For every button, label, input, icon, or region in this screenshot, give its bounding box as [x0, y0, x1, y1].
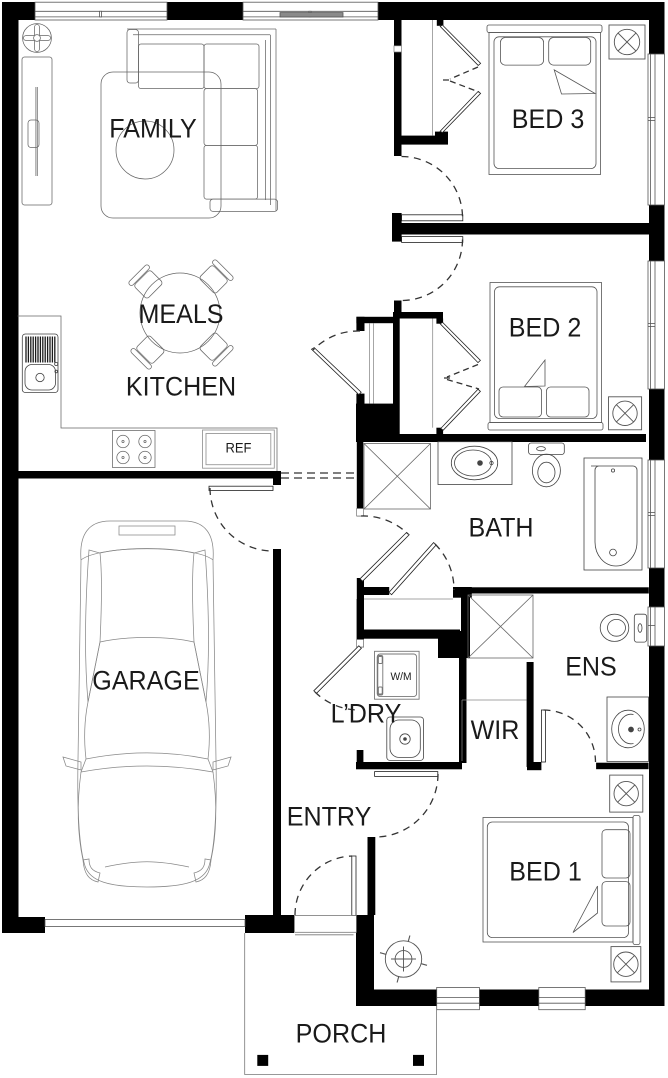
svg-text:L’DRY: L’DRY [331, 698, 402, 729]
svg-text:W/M: W/M [390, 671, 411, 683]
svg-text:ENS: ENS [565, 651, 617, 682]
svg-text:MEALS: MEALS [138, 298, 223, 329]
svg-text:GARAGE: GARAGE [92, 665, 199, 696]
svg-text:PORCH: PORCH [296, 1018, 387, 1049]
svg-text:KITCHEN: KITCHEN [126, 371, 236, 402]
svg-text:BATH: BATH [468, 512, 533, 543]
svg-text:BED 3: BED 3 [512, 103, 585, 134]
svg-text:WIR: WIR [471, 714, 520, 745]
svg-text:ENTRY: ENTRY [287, 801, 372, 832]
svg-text:BED 1: BED 1 [509, 856, 582, 887]
svg-text:REF: REF [225, 440, 251, 456]
svg-text:FAMILY: FAMILY [109, 112, 196, 143]
svg-text:BED 2: BED 2 [509, 312, 582, 343]
